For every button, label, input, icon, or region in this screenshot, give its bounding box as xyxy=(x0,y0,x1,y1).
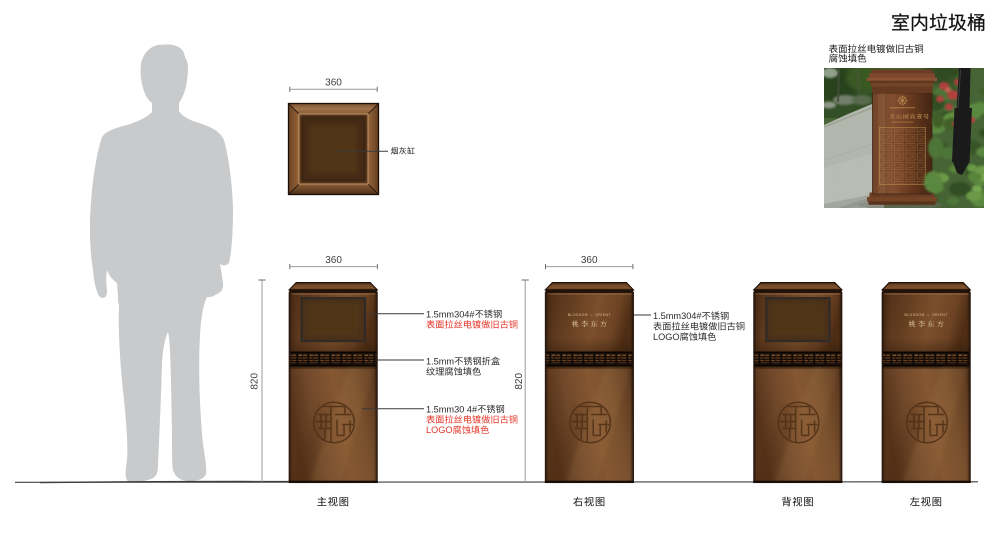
svg-text:360: 360 xyxy=(325,255,342,266)
svg-text:LOGO: LOGO xyxy=(653,332,680,342)
svg-text:360: 360 xyxy=(581,255,598,266)
svg-text:BLOSSOM ○ ORIENT: BLOSSOM ○ ORIENT xyxy=(905,313,948,317)
svg-text:820: 820 xyxy=(514,373,525,390)
svg-text:LOGO: LOGO xyxy=(426,425,453,435)
svg-text:1.5mm304#: 1.5mm304# xyxy=(653,311,702,321)
svg-text:820: 820 xyxy=(249,373,260,390)
svg-text:1.5mm: 1.5mm xyxy=(426,356,454,366)
svg-text:1.5mm30 4#: 1.5mm30 4# xyxy=(426,404,478,414)
svg-text:1.5mm304#: 1.5mm304# xyxy=(426,309,475,319)
svg-text:360: 360 xyxy=(325,78,342,89)
svg-text:BLOSSOM ○ ORIENT: BLOSSOM ○ ORIENT xyxy=(568,313,611,317)
